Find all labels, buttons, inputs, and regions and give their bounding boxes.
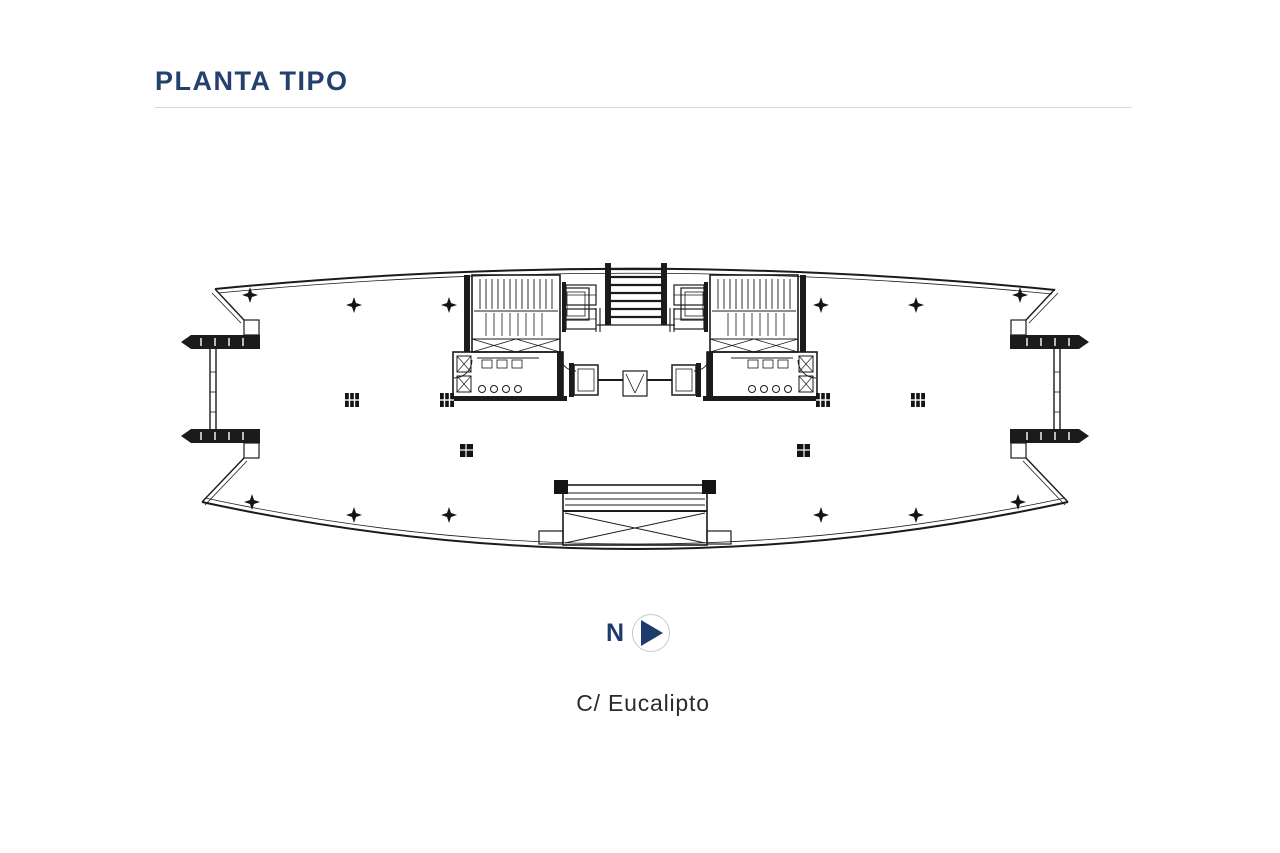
building-outline [202,269,1068,549]
floor-plan [177,252,1093,564]
central-lobby-link [569,363,701,397]
page-title: PLANTA TIPO [155,66,349,97]
street-name: C/ Eucalipto [390,690,896,717]
loading-dock [539,480,731,545]
north-label: N [606,619,625,648]
column-markers [242,287,1028,523]
grid-column-markers [345,393,925,407]
north-arrow-icon [632,614,670,652]
north-arrow: N [606,614,670,652]
north-arrow-triangle [641,620,663,646]
east-wing-tip [1010,289,1089,505]
floor-plan-drawing [177,252,1093,564]
title-divider [155,107,1132,108]
west-wing-tip [181,289,260,505]
